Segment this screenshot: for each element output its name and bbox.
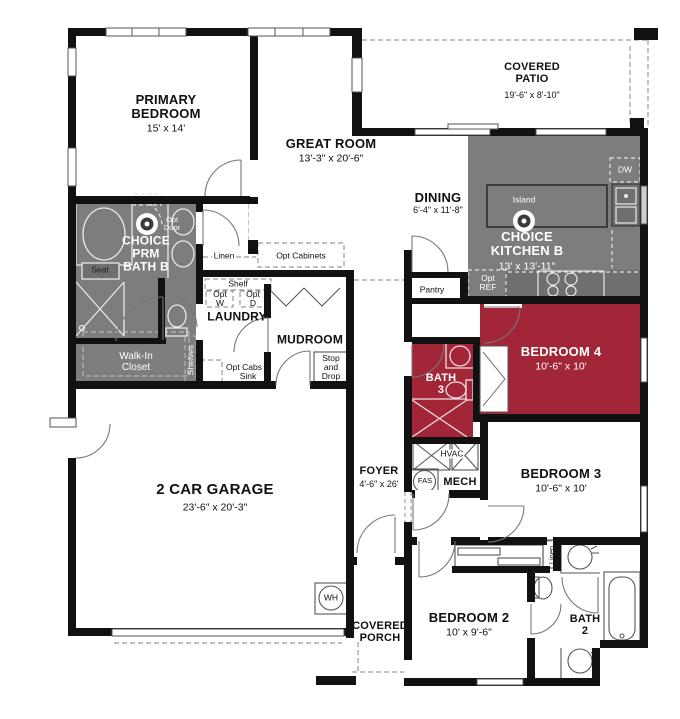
- opt-cabs-sink-label: Opt Cabs & Sink: [220, 363, 276, 381]
- mudroom-bifold-doors: [268, 288, 340, 306]
- covered-patio-label: COVERED PATIO: [492, 62, 572, 86]
- tub-drain: [620, 634, 624, 638]
- garage-side-door: [76, 424, 110, 458]
- bedroom2-dims: 10' x 9'-6": [446, 627, 492, 638]
- bath2-door: [562, 577, 598, 613]
- bedroom2-door: [419, 541, 455, 577]
- opt-door-label: Opt Door: [158, 216, 186, 232]
- laundry-label: LAUNDRY: [207, 311, 267, 324]
- bath2-inner-door: [531, 604, 561, 634]
- foyer-dims: 4'-6" x 26': [359, 480, 398, 490]
- opt-ref-label: Opt REF: [474, 274, 502, 292]
- window: [106, 28, 186, 36]
- bath3-label: BATH 3: [421, 373, 461, 397]
- faucet: [624, 194, 628, 198]
- sliding-door-panel: [458, 548, 500, 555]
- covered-patio-dims: 19'-6" x 8'-10": [504, 91, 559, 101]
- bathtub-fixture-2: [609, 577, 635, 640]
- bedroom4-label: BEDROOM 4: [521, 345, 602, 359]
- window: [477, 679, 523, 685]
- mech-label: MECH: [443, 477, 476, 489]
- toilet-fixture: [534, 577, 552, 599]
- kitchen-counter-fill: [505, 270, 640, 298]
- opt-d-label: Opt D: [242, 290, 264, 308]
- kitchen-dims: 13' x 13'-11": [499, 261, 556, 272]
- primary-door: [205, 160, 241, 196]
- bedroom3-dims: 10'-6" x 10': [535, 483, 587, 494]
- patio-slider-panel: [448, 124, 498, 129]
- kitchen-label: CHOICE KITCHEN B: [480, 230, 575, 258]
- opt-cabinets-label: Opt Cabinets: [275, 251, 327, 260]
- mech-door: [413, 494, 449, 530]
- window: [68, 148, 76, 186]
- faucet-ticks: [591, 546, 599, 553]
- front-door: [357, 515, 395, 553]
- sink-fixture: [568, 545, 592, 569]
- porch-outline-dashed: [352, 642, 404, 672]
- opt-sink-box: [200, 360, 222, 382]
- wh-label: WH: [324, 593, 338, 602]
- dining-label: DINING: [415, 191, 462, 205]
- pantry-label: Pantry: [420, 285, 445, 294]
- shelves-label: Shelves: [186, 345, 195, 375]
- bedroom3-door: [488, 506, 524, 542]
- bedroom4-closet: [480, 346, 508, 412]
- island-label: Island: [513, 195, 536, 204]
- bedroom4-dims: 10'-6" x 10': [535, 361, 587, 372]
- bedroom3-label: BEDROOM 3: [521, 467, 602, 481]
- mudroom-label: MUDROOM: [277, 334, 343, 347]
- window: [248, 28, 330, 36]
- dining-dims: 6'-4" x 11'-8": [413, 206, 463, 216]
- shelf-label: Shelf: [228, 279, 247, 288]
- prm-bath-label: CHOICE PRM BATH B: [116, 235, 176, 274]
- linen-label: Linen: [214, 251, 235, 260]
- window: [641, 338, 647, 382]
- covered-porch-label: COVERED PORCH: [345, 621, 415, 645]
- dw-label: DW: [618, 165, 632, 174]
- floor-plan: PRIMARY BEDROOM 15' x 14' GREAT ROOM 13'…: [0, 0, 680, 719]
- sink-fixture: [568, 649, 592, 673]
- seat-label: Seat: [91, 265, 109, 274]
- window: [68, 48, 76, 76]
- door-leaf-exterior: [50, 418, 76, 427]
- garage-label: 2 CAR GARAGE: [156, 482, 273, 498]
- bath-hall-door: [203, 210, 239, 246]
- linen2-label: Linen: [548, 546, 556, 564]
- patio-slider: [415, 129, 490, 135]
- stop-and-drop-label: Stop and Drop: [316, 354, 346, 382]
- foyer-label: FOYER: [360, 466, 399, 478]
- walk-in-closet-label: Walk-In Closet: [106, 352, 166, 374]
- bedroom2-label: BEDROOM 2: [429, 611, 510, 625]
- garage-dims: 23'-6" x 20'-3": [183, 502, 248, 513]
- window: [536, 129, 606, 135]
- primary-bedroom-dims: 15' x 14': [147, 123, 185, 134]
- great-room-dims: 13'-3" x 20'-6": [299, 153, 364, 164]
- window: [641, 486, 647, 532]
- great-room-label: GREAT ROOM: [286, 137, 377, 151]
- mudroom-garage-door: [276, 351, 310, 385]
- hvac-label: HVAC: [440, 449, 465, 458]
- island: [487, 185, 607, 227]
- primary-bedroom-label: PRIMARY BEDROOM: [106, 93, 226, 121]
- window: [352, 58, 362, 92]
- pantry-door: [412, 236, 448, 272]
- garage-door: [112, 629, 344, 636]
- fas-label: FAS: [418, 477, 432, 485]
- window: [641, 186, 647, 224]
- bath2-label: BATH 2: [565, 614, 605, 638]
- sliding-door-panel: [498, 558, 540, 565]
- opt-w-label: Opt W: [209, 290, 231, 308]
